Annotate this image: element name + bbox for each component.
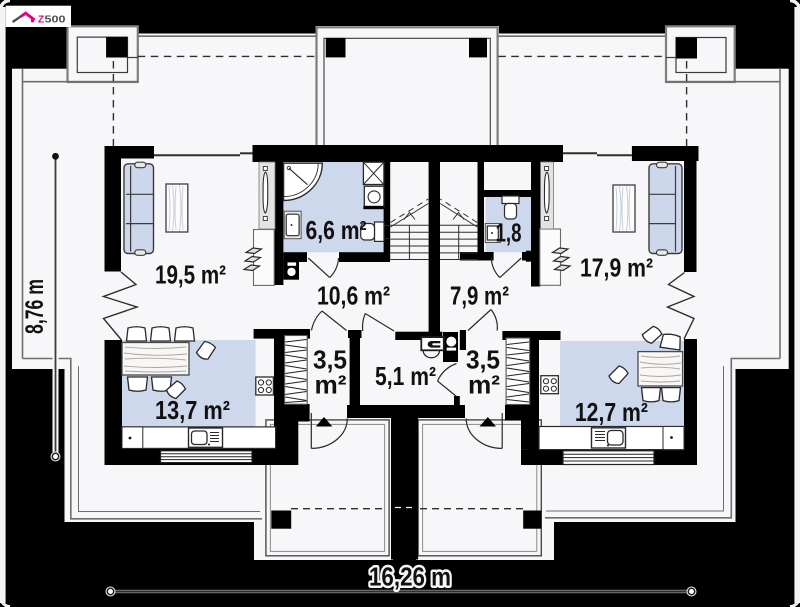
svg-text:16,26 m: 16,26 m: [369, 562, 451, 592]
svg-text:7,9 m²: 7,9 m²: [450, 281, 509, 311]
svg-text:5,1 m²: 5,1 m²: [375, 361, 436, 391]
svg-text:m²: m²: [468, 370, 500, 400]
svg-text:6,6 m²: 6,6 m²: [306, 215, 367, 245]
svg-text:19,5 m²: 19,5 m²: [155, 260, 226, 290]
svg-text:13,7 m²: 13,7 m²: [155, 395, 230, 425]
svg-text:10,6 m²: 10,6 m²: [317, 281, 390, 311]
svg-text:m²: m²: [315, 370, 347, 400]
svg-text:12,7 m²: 12,7 m²: [575, 397, 648, 427]
svg-text:8,76 m: 8,76 m: [21, 279, 49, 334]
svg-text:1,8: 1,8: [496, 218, 522, 248]
svg-text:17,9 m²: 17,9 m²: [580, 253, 653, 283]
svg-text:500: 500: [45, 15, 67, 26]
svg-text:Z: Z: [38, 15, 44, 26]
